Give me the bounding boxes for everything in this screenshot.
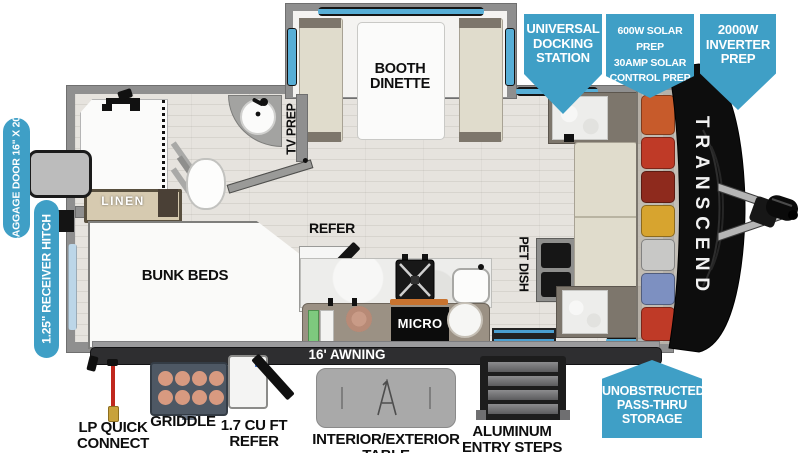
refer-label: REFER: [300, 221, 364, 236]
toilet-icon: [186, 158, 226, 210]
bunk-beds-label: BUNK BEDS: [120, 268, 250, 284]
entry-steps-graphic: [480, 356, 566, 420]
bed-bracket-icon: [564, 134, 574, 142]
bench-end-cap: [459, 132, 501, 142]
cabinet-green-panel: [308, 310, 319, 342]
dinette-window-icon: [318, 7, 484, 16]
sink-faucet-dot-icon: [478, 264, 484, 270]
dinette-side-window-left-icon: [287, 28, 297, 86]
nightstand-bottom-surface: [562, 290, 608, 334]
table-logo-icon: [374, 379, 400, 417]
bench-end-cap: [459, 18, 501, 28]
cabinet-hinge-icon: [352, 298, 357, 306]
receiver-hitch-callout-text: 1.25" RECEIVER HITCH: [40, 214, 53, 344]
picnic-table-graphic: [316, 368, 456, 428]
lp-valve-icon: [107, 359, 118, 366]
kitchen-sink-icon: [452, 268, 490, 304]
awning-arm-icon: [86, 355, 98, 372]
pass-thru-storage-callout: UNOBSTRUCTED PASS-THRU STORAGE: [602, 360, 702, 438]
lp-hose-icon: [111, 362, 115, 408]
bench-end-cap: [299, 18, 341, 28]
cabinet-round-sink-icon: [447, 302, 483, 338]
griddle-graphic: [150, 362, 228, 416]
dinette-bench-right: [459, 18, 503, 142]
micro-label: MICRO: [391, 317, 449, 331]
tv-prep-label: TV PREP: [285, 103, 298, 154]
micro-heat-strip: [390, 299, 448, 305]
shower-head-icon: [100, 88, 152, 114]
booth-dinette-label: BOOTH DINETTE: [340, 62, 460, 93]
compact-refer-label: 1.7 CU FT REFER: [208, 418, 300, 450]
door-handle-icon: [302, 157, 308, 163]
baggage-door-callout-text: BAGGAGE DOOR 16" X 20": [11, 111, 24, 244]
entry-steps-label: ALUMINUM ENTRY STEPS: [450, 424, 574, 453]
bunk-beds: [88, 221, 310, 349]
linen-cabinet-dark: [158, 189, 178, 217]
linen-label: LINEN: [88, 195, 158, 208]
stove-icon: [394, 254, 436, 302]
baggage-door-graphic: [28, 150, 92, 198]
floorplan-diagram: BOOTH DINETTE TV PREP LINEN BUNK BEDS RE…: [0, 0, 800, 453]
dinette-side-window-right-icon: [505, 28, 515, 86]
cabinet-round-burner-icon: [346, 306, 372, 332]
sink-faucet-icon: [248, 94, 274, 120]
awning-label: 16' AWNING: [282, 348, 412, 363]
cabinet-hinge-icon: [328, 298, 333, 306]
front-bed: [574, 142, 638, 292]
tongue-hitch-icon: [700, 175, 800, 250]
shower-pan: [80, 99, 168, 199]
cabinet-white-panel: [320, 310, 334, 342]
pet-dish-label: PET DISH: [516, 236, 529, 291]
rear-window-icon: [68, 244, 77, 330]
